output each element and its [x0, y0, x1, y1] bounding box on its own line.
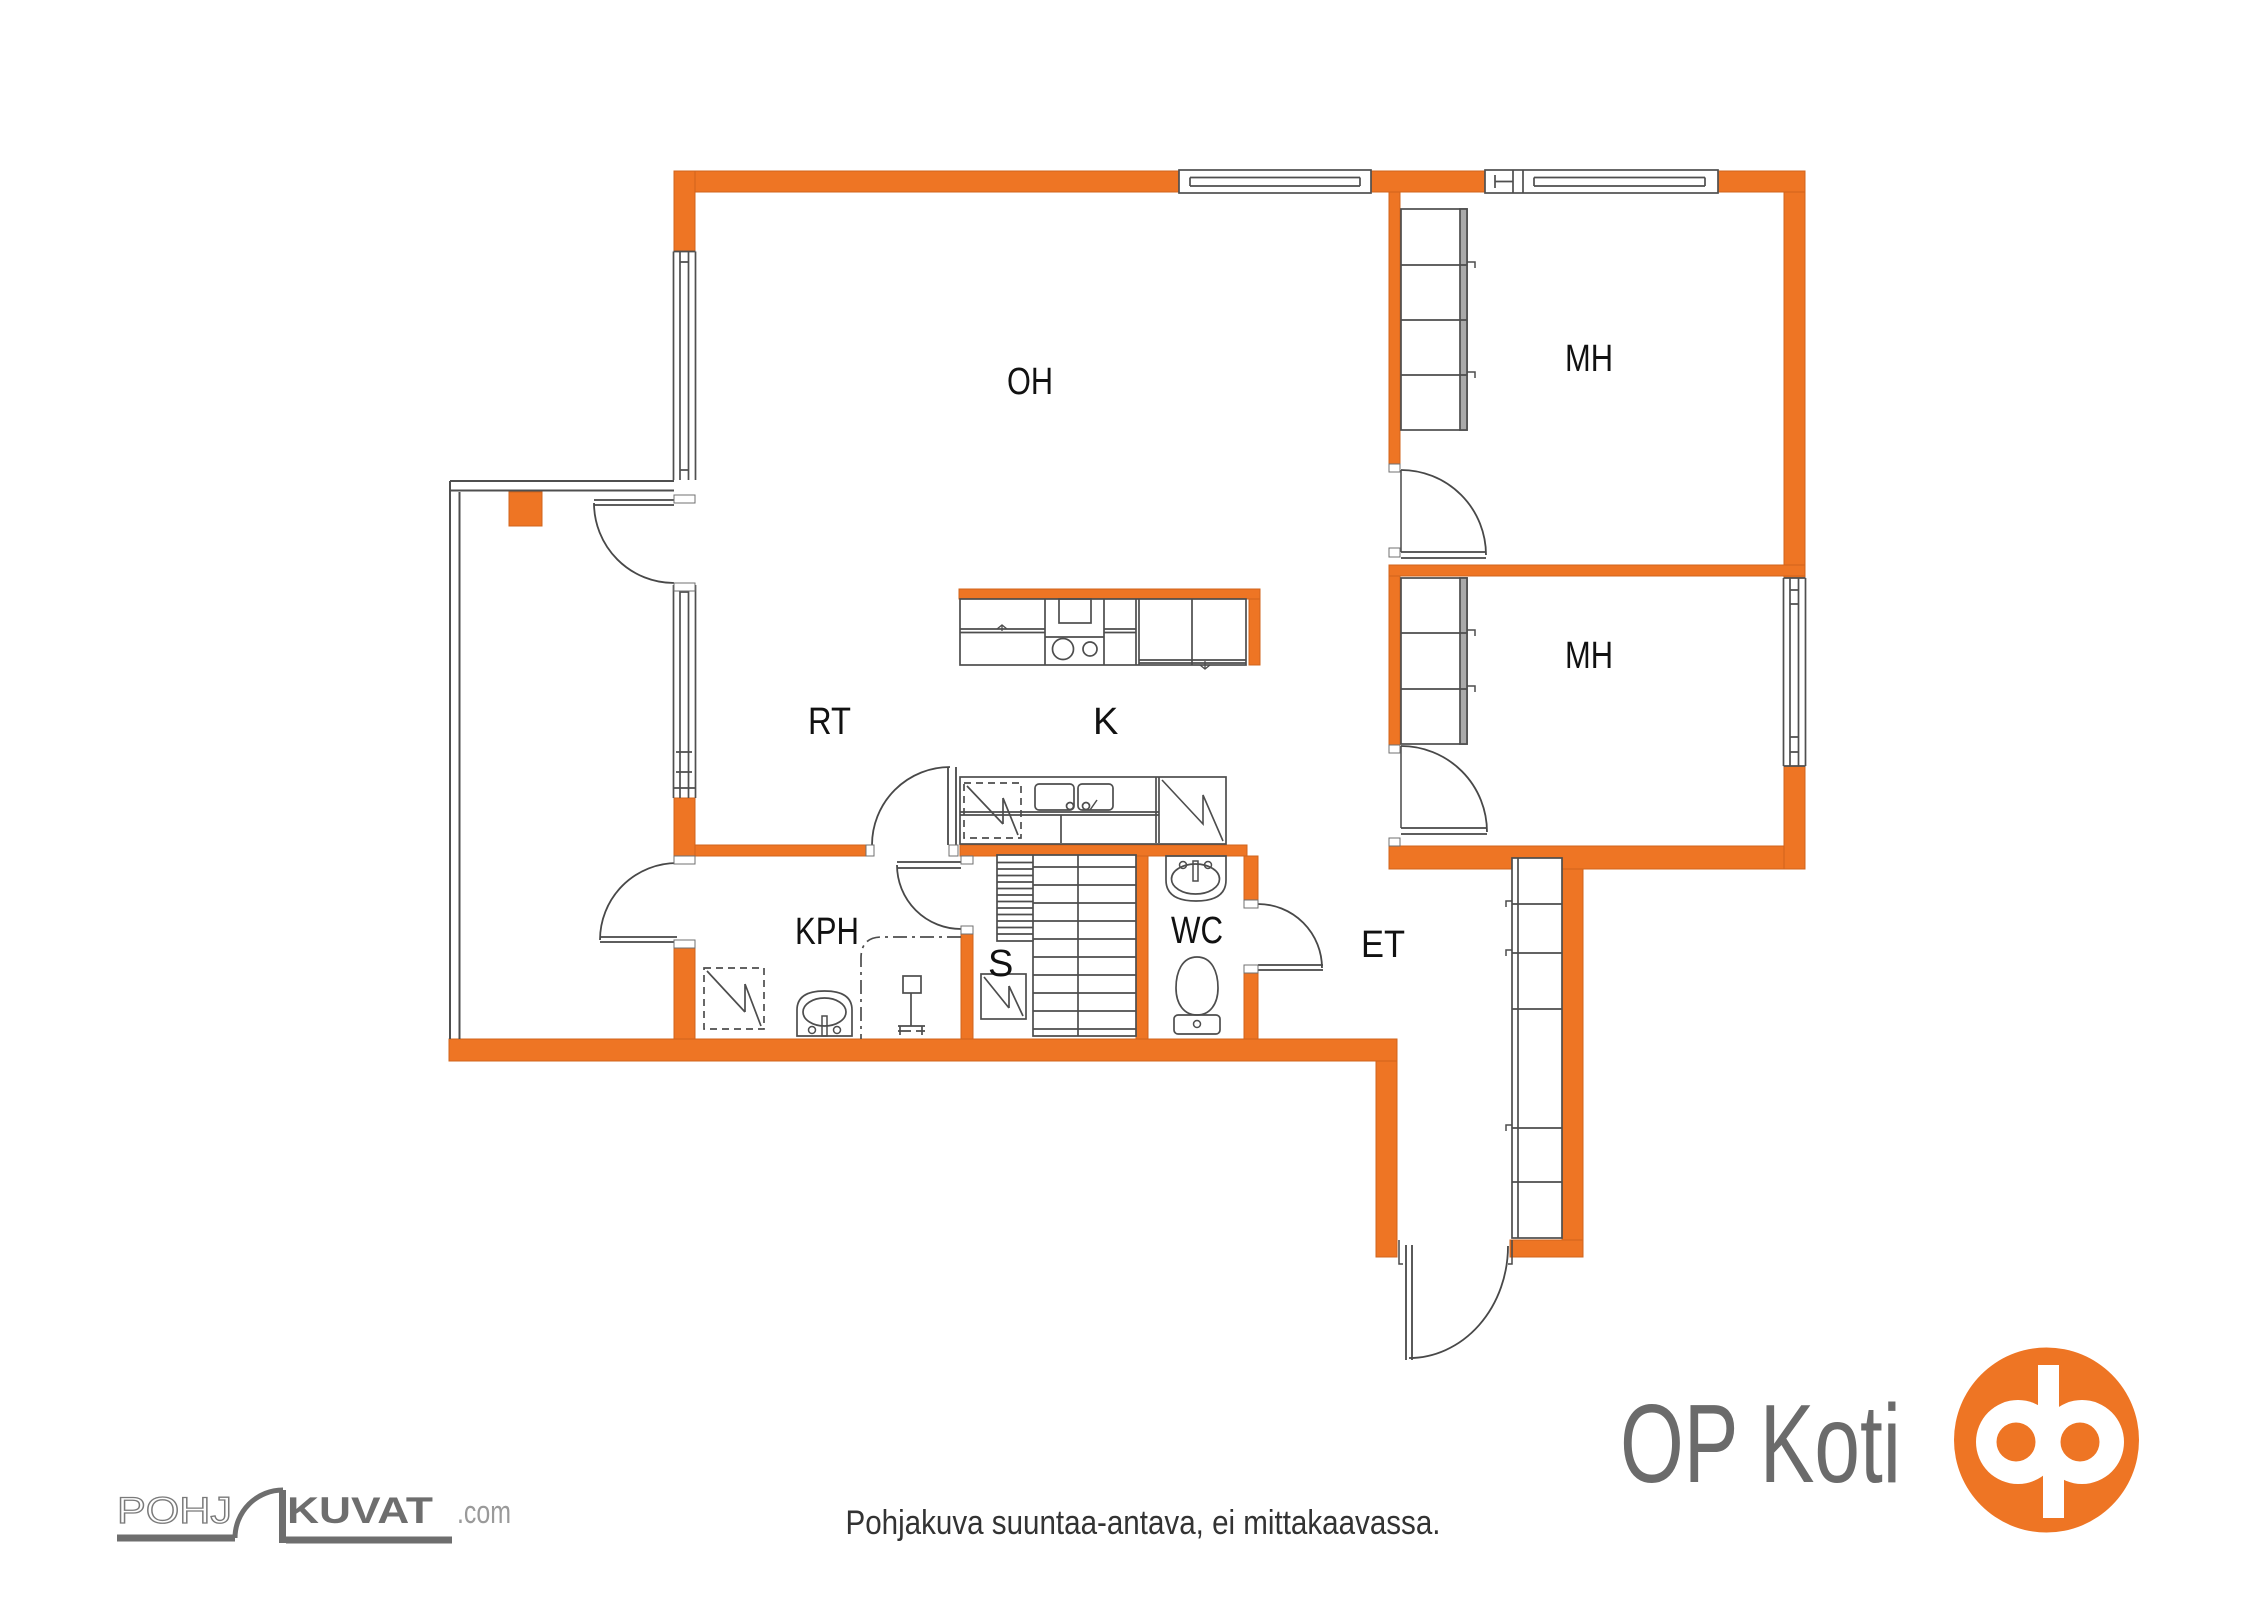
svg-text:Pohjakuva suuntaa-antava, ei m: Pohjakuva suuntaa-antava, ei mittakaavas…	[846, 1504, 1441, 1542]
svg-text:ET: ET	[1361, 924, 1405, 966]
svg-text:.com: .com	[457, 1494, 511, 1530]
svg-text:MH: MH	[1565, 338, 1613, 380]
svg-text:KUVAT: KUVAT	[287, 1490, 433, 1531]
svg-text:RT: RT	[808, 701, 851, 743]
svg-text:OH: OH	[1007, 361, 1053, 403]
svg-text:MH: MH	[1565, 635, 1613, 677]
svg-text:K: K	[1093, 701, 1118, 743]
svg-text:OP Koti: OP Koti	[1620, 1382, 1901, 1506]
svg-text:KPH: KPH	[795, 911, 859, 953]
svg-text:S: S	[988, 943, 1013, 985]
svg-text:POHJ: POHJ	[117, 1490, 232, 1531]
svg-text:WC: WC	[1171, 910, 1223, 952]
